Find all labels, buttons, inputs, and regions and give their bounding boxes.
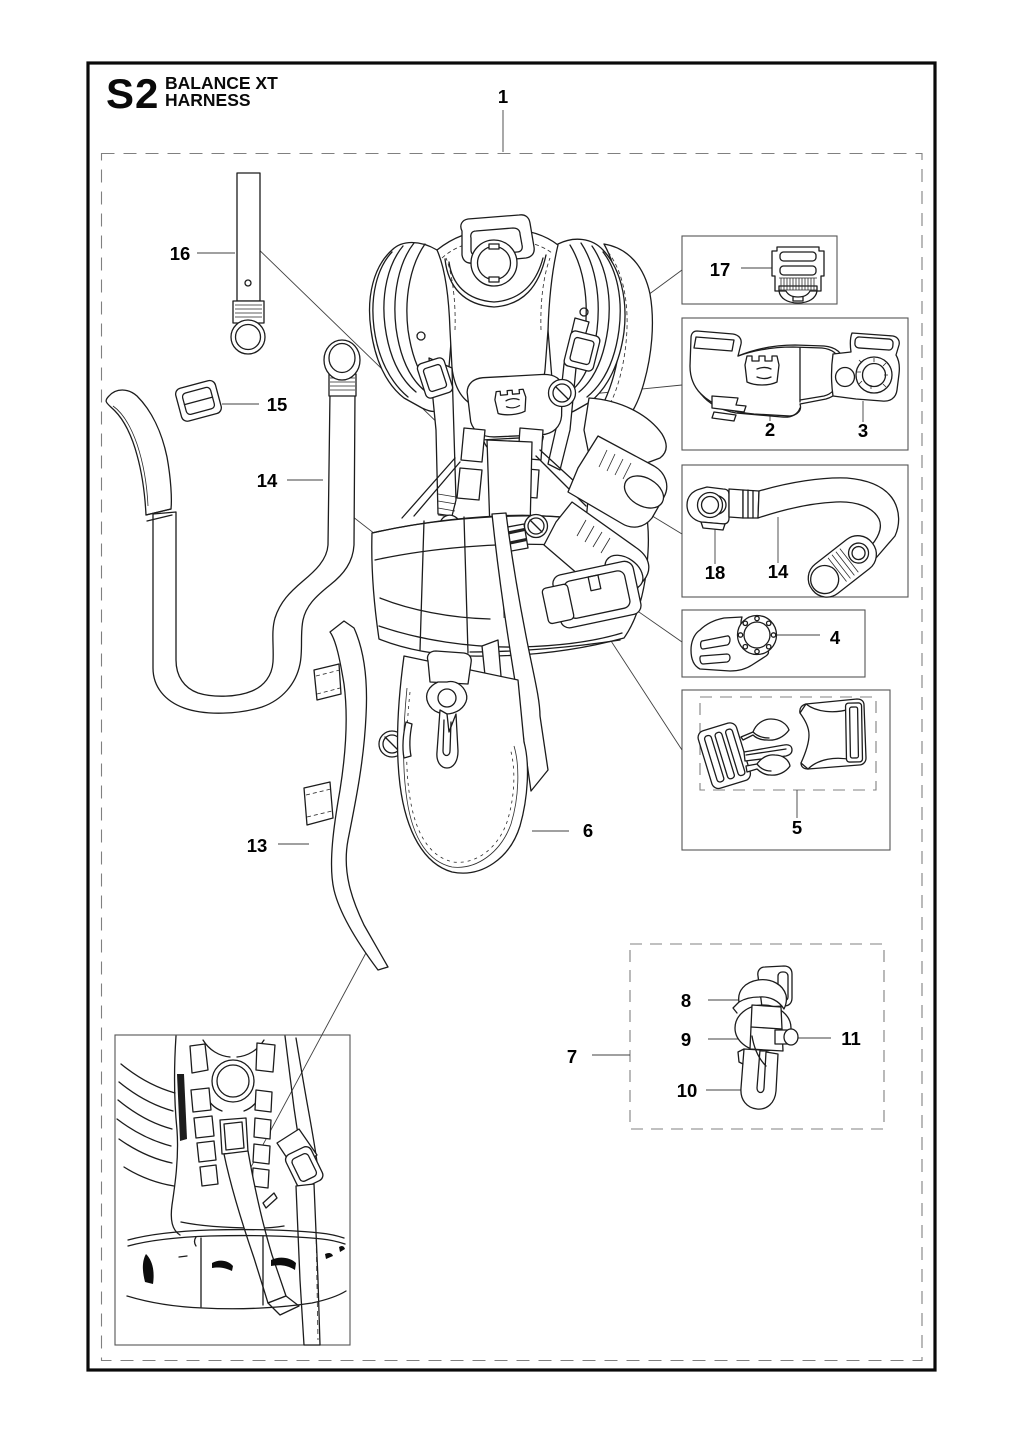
svg-text:4: 4 bbox=[830, 627, 841, 648]
svg-text:S2: S2 bbox=[106, 70, 159, 117]
svg-text:13: 13 bbox=[247, 835, 268, 856]
svg-text:8: 8 bbox=[681, 990, 691, 1011]
svg-text:16: 16 bbox=[170, 243, 191, 264]
svg-text:10: 10 bbox=[677, 1080, 698, 1101]
svg-text:5: 5 bbox=[792, 817, 802, 838]
svg-text:2: 2 bbox=[765, 419, 775, 440]
svg-text:9: 9 bbox=[681, 1029, 691, 1050]
svg-text:14: 14 bbox=[257, 470, 278, 491]
svg-text:1: 1 bbox=[498, 86, 508, 107]
svg-text:3: 3 bbox=[858, 420, 868, 441]
svg-text:17: 17 bbox=[710, 259, 731, 280]
svg-text:7: 7 bbox=[567, 1046, 577, 1067]
svg-text:14: 14 bbox=[768, 561, 789, 582]
svg-text:HARNESS: HARNESS bbox=[165, 90, 251, 110]
svg-text:18: 18 bbox=[705, 562, 726, 583]
svg-text:11: 11 bbox=[841, 1028, 861, 1049]
svg-text:6: 6 bbox=[583, 820, 593, 841]
svg-text:15: 15 bbox=[267, 394, 288, 415]
